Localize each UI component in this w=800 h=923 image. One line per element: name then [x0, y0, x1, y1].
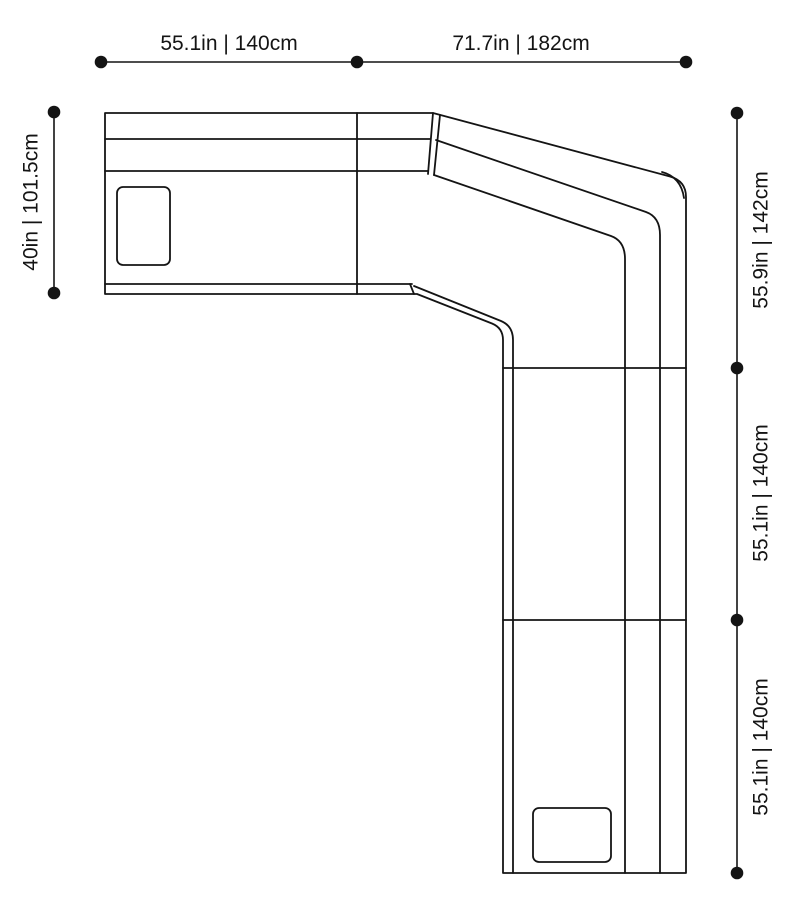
dimension-dot	[95, 56, 108, 69]
corner-back-wedge-seam-2	[434, 115, 440, 175]
diagram-svg: 55.1in | 140cm 71.7in | 182cm 40in | 101…	[0, 0, 800, 923]
sofa-outline	[105, 113, 686, 873]
corner-back-wedge-seam-1	[428, 113, 433, 174]
dimension-dot	[731, 107, 744, 120]
dimension-dot	[680, 56, 693, 69]
dimension-label-right-bottom: 55.1in | 140cm	[750, 678, 773, 815]
dimension-dot	[731, 614, 744, 627]
corner-back-seam-outer	[436, 140, 660, 873]
dimension-dot	[48, 106, 61, 119]
dimension-dot	[351, 56, 364, 69]
dimension-dot	[48, 287, 61, 300]
corner-back-seam-inner	[434, 175, 625, 873]
dimension-right: 55.9in | 142cm 55.1in | 140cm 55.1in | 1…	[731, 107, 773, 880]
pillow-left-section	[117, 187, 170, 265]
dimension-label-right-top: 55.9in | 142cm	[750, 171, 773, 308]
pillow-right-section	[533, 808, 611, 862]
dimension-label-left: 40in | 101.5cm	[20, 133, 43, 270]
sofa-plan-drawing	[105, 113, 686, 873]
dimension-label-top-right: 71.7in | 182cm	[452, 32, 589, 55]
dimension-diagram: 55.1in | 140cm 71.7in | 182cm 40in | 101…	[0, 0, 800, 923]
dimension-label-right-middle: 55.1in | 140cm	[750, 424, 773, 561]
dimension-left: 40in | 101.5cm	[20, 106, 61, 300]
right-front-seam	[414, 286, 513, 873]
dimension-dot	[731, 362, 744, 375]
dimension-top: 55.1in | 140cm 71.7in | 182cm	[95, 32, 693, 68]
dimension-label-top-left: 55.1in | 140cm	[160, 32, 297, 55]
dimension-dot	[731, 867, 744, 880]
